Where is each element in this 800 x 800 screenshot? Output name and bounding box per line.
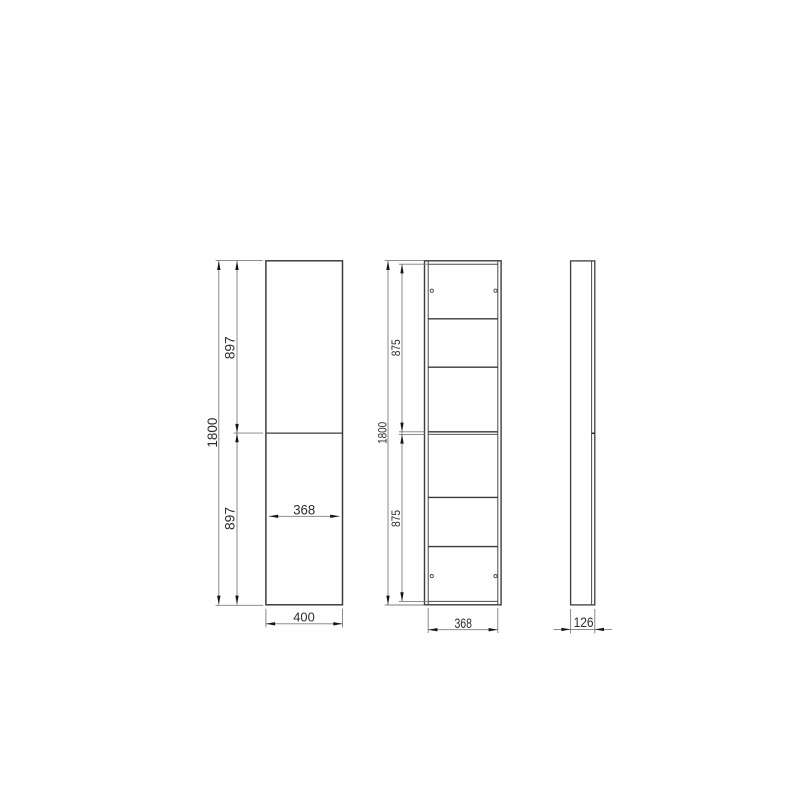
svg-text:400: 400 (293, 610, 315, 625)
svg-text:368: 368 (454, 616, 472, 631)
svg-text:897: 897 (221, 507, 237, 530)
svg-text:875: 875 (389, 339, 403, 356)
svg-text:368: 368 (293, 502, 315, 517)
svg-text:1800: 1800 (204, 417, 220, 447)
svg-text:875: 875 (389, 510, 403, 527)
svg-text:1800: 1800 (375, 422, 389, 444)
svg-text:126: 126 (574, 614, 594, 630)
svg-text:897: 897 (221, 336, 237, 359)
